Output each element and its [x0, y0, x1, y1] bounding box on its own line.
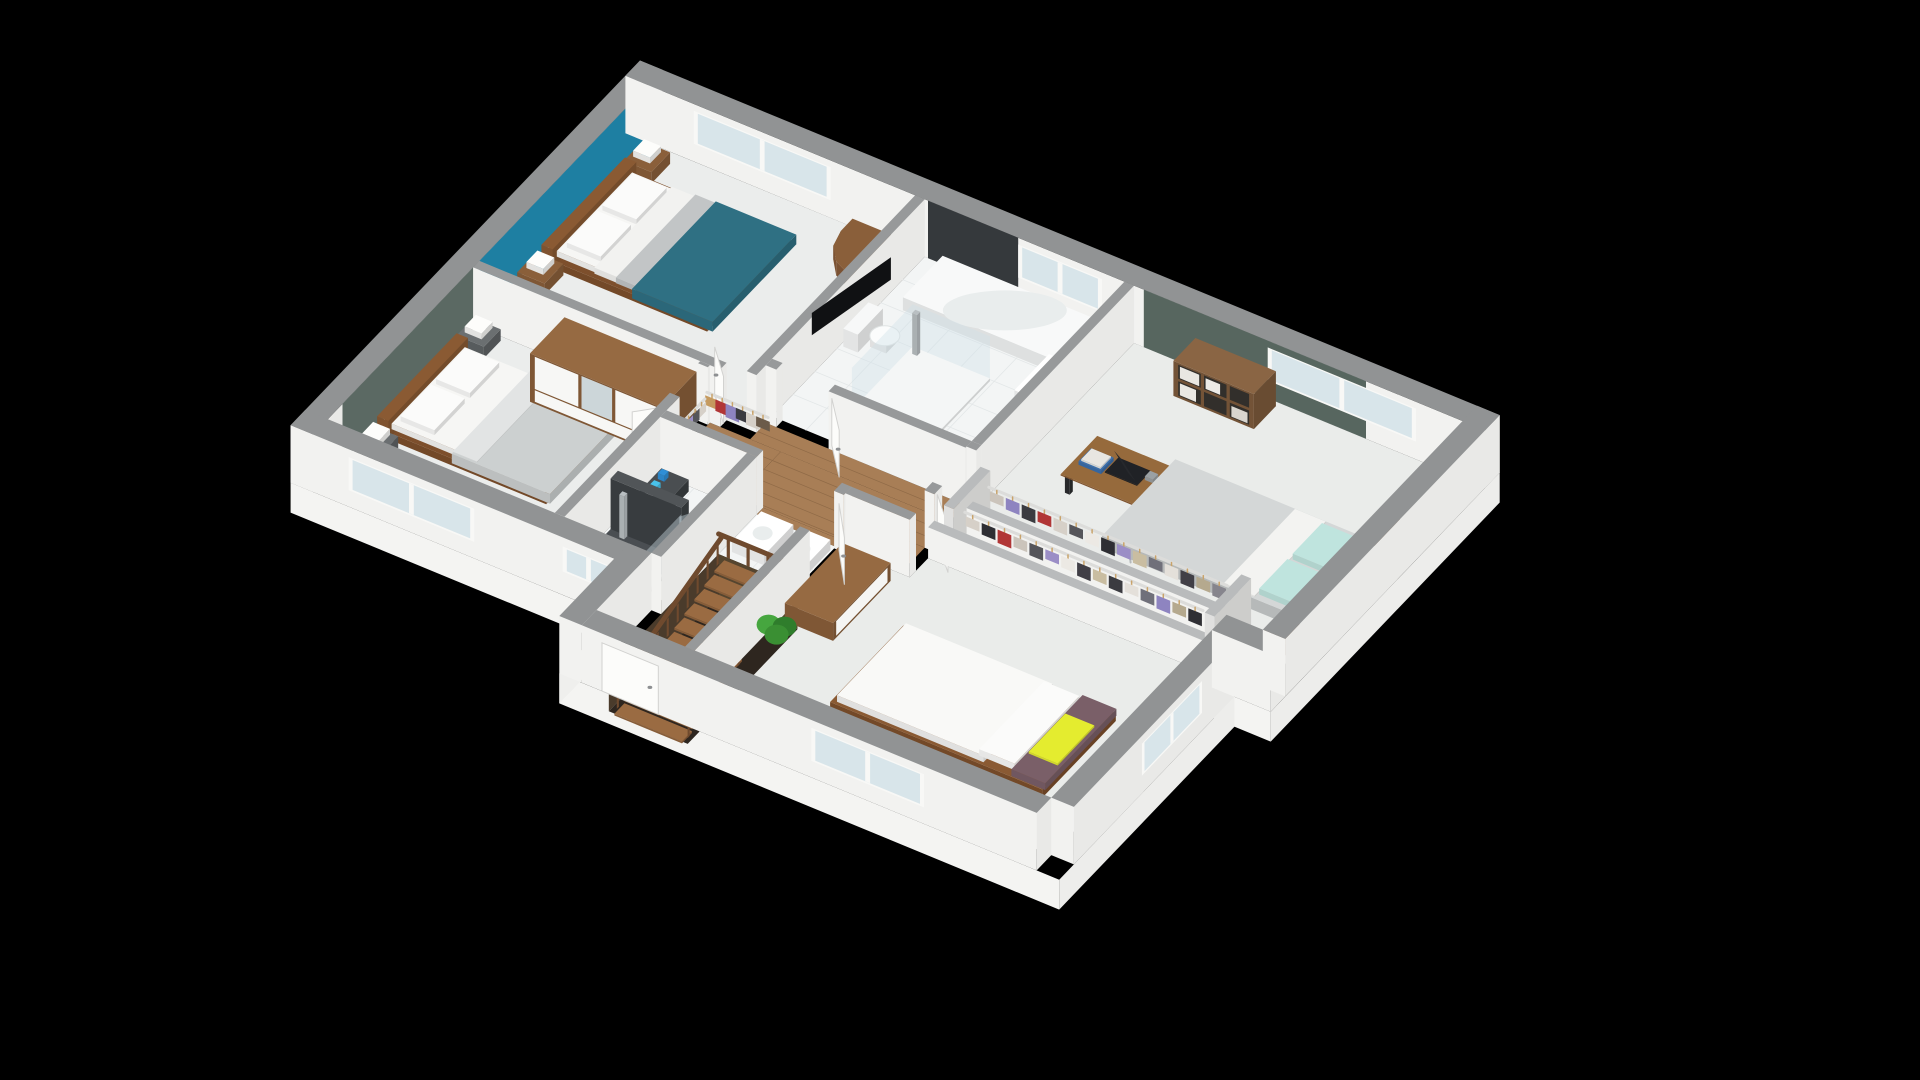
shower-column — [619, 491, 627, 539]
washbasin-bowl — [753, 526, 773, 540]
bathtub-basin — [943, 290, 1067, 330]
isometric-floor-plan-canvas — [0, 0, 1920, 1080]
shower-column — [912, 310, 920, 356]
floor-plan-screenshot — [0, 0, 1920, 1080]
